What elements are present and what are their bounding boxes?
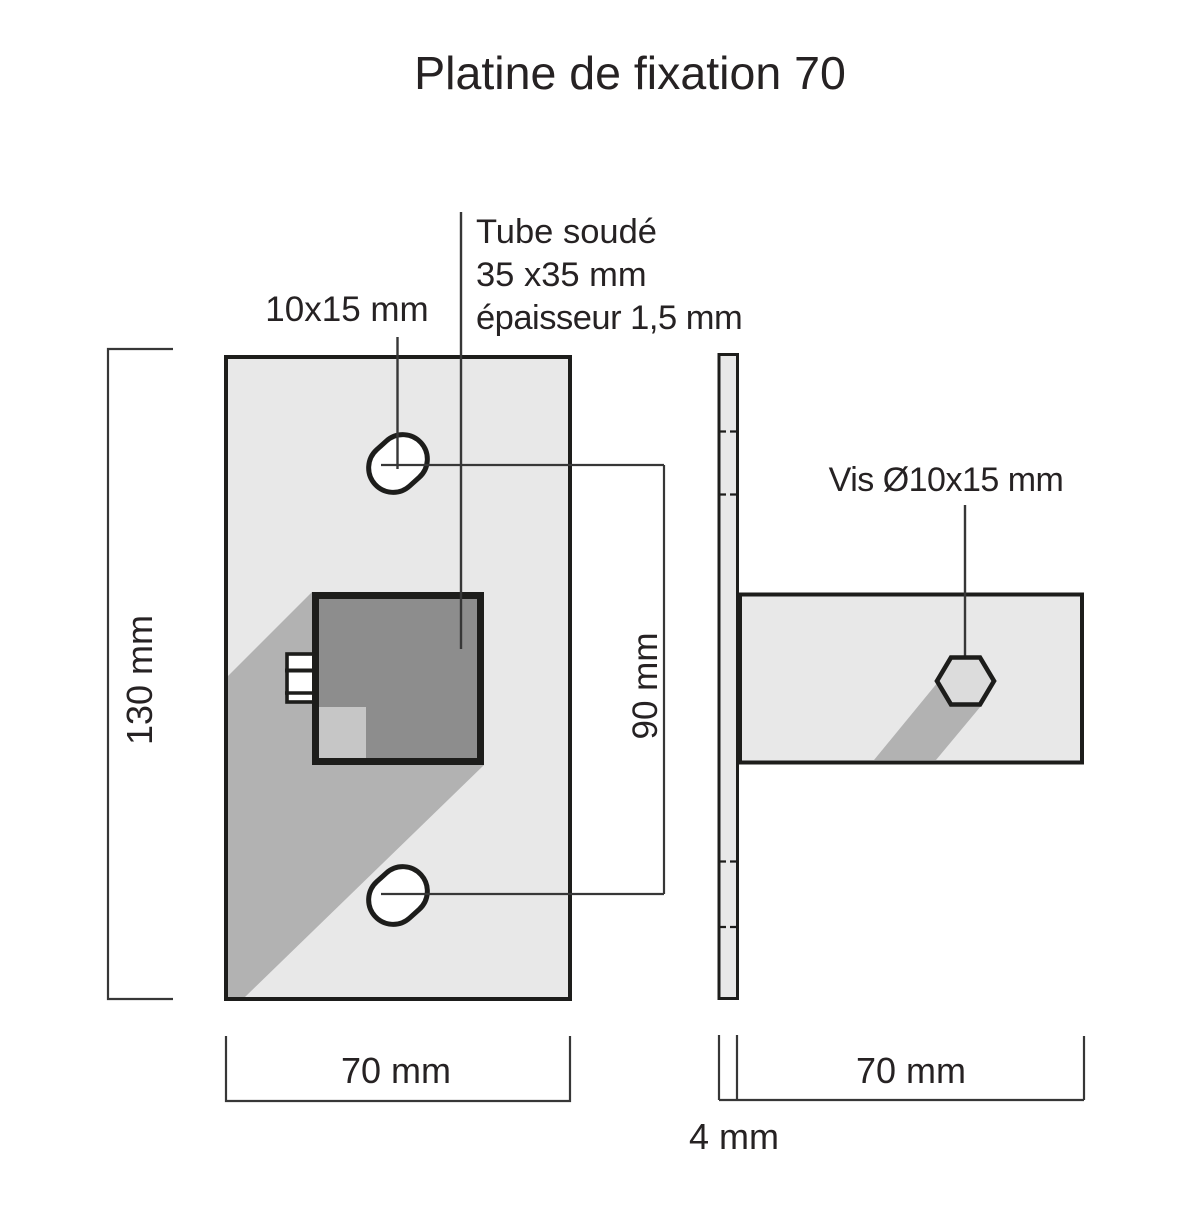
svg-text:70 mm: 70 mm (856, 1050, 966, 1091)
svg-text:Tube soudé: Tube soudé (476, 213, 657, 251)
svg-text:35 x35 mm: 35 x35 mm (476, 256, 647, 294)
svg-text:4 mm: 4 mm (689, 1116, 779, 1157)
svg-text:Vis Ø10x15 mm: Vis Ø10x15 mm (829, 461, 1064, 499)
svg-text:épaisseur 1,5 mm: épaisseur 1,5 mm (476, 299, 742, 337)
svg-text:130 mm: 130 mm (119, 615, 160, 745)
svg-text:Platine de fixation 70: Platine de fixation 70 (414, 47, 846, 99)
svg-text:10x15 mm: 10x15 mm (265, 290, 428, 329)
svg-text:70 mm: 70 mm (341, 1050, 451, 1091)
svg-text:90 mm: 90 mm (626, 633, 665, 740)
